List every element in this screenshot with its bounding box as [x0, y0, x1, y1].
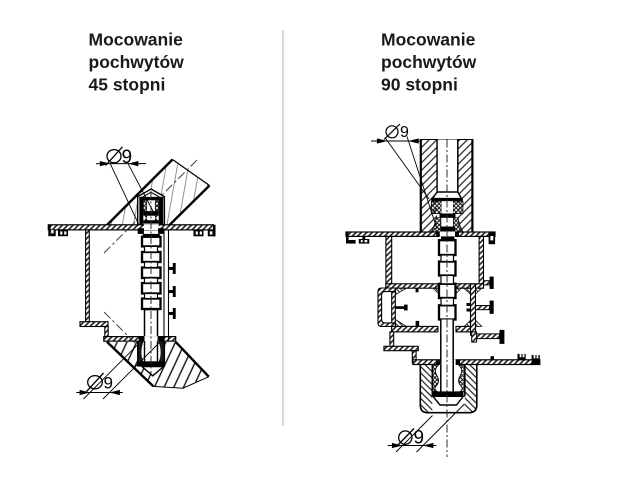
svg-text:pochwytów: pochwytów — [89, 52, 185, 72]
svg-text:9: 9 — [122, 147, 133, 168]
svg-text:9: 9 — [414, 428, 425, 449]
svg-text:90 stopni: 90 stopni — [381, 75, 458, 95]
svg-text:Mocowanie: Mocowanie — [89, 30, 184, 50]
svg-text:pochwytów: pochwytów — [381, 52, 477, 72]
svg-text:9: 9 — [400, 124, 409, 141]
svg-text:9: 9 — [104, 373, 113, 392]
svg-text:45 stopni: 45 stopni — [89, 75, 166, 95]
svg-text:Mocowanie: Mocowanie — [381, 30, 476, 50]
